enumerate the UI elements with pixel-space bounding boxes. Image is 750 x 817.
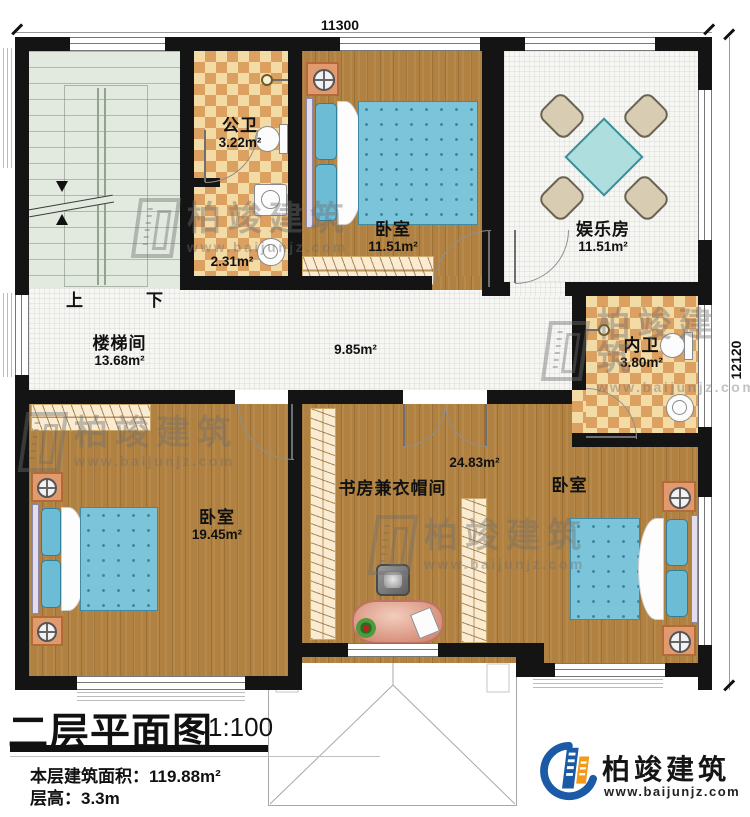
wall	[180, 276, 432, 290]
wall	[302, 390, 403, 404]
room-label-entertainment: 娱乐房 11.51m²	[553, 220, 653, 254]
light-pull-line	[273, 79, 288, 81]
window	[555, 663, 665, 677]
bed-right	[570, 515, 698, 623]
title-underline	[10, 745, 268, 752]
floor-height-label: 层高：	[30, 789, 81, 808]
nightstand	[31, 472, 63, 502]
window	[698, 305, 712, 427]
floor-height-value: 3.3m	[81, 789, 120, 808]
nightstand	[662, 625, 696, 656]
wardrobe	[461, 498, 487, 643]
wall	[15, 375, 29, 690]
brand-logo: 柏竣建筑 www.baijunjz.com	[536, 740, 741, 806]
toilet-tank	[279, 124, 288, 154]
wall	[15, 37, 29, 295]
stair-inner-outline	[64, 85, 148, 287]
eave-lines	[3, 48, 14, 168]
bed-left	[32, 504, 158, 614]
eave-lines	[3, 293, 14, 377]
room-label-bedroom-right: 卧室	[532, 476, 607, 495]
room-label-bath-lobby: 2.31m²	[192, 254, 272, 269]
wall	[180, 37, 194, 290]
wardrobe	[310, 408, 336, 640]
nightstand	[306, 62, 339, 96]
window	[525, 37, 655, 51]
entertainment-threshold	[510, 282, 565, 296]
nightstand	[662, 481, 696, 512]
wall	[487, 390, 572, 404]
wall	[295, 643, 348, 657]
door-leaf	[488, 230, 490, 287]
door-leaf	[291, 404, 293, 459]
wall	[288, 37, 302, 276]
brand-url: www.baijunjz.com	[604, 784, 740, 799]
floor-height-row: 层高：3.3m	[30, 784, 120, 809]
eave-lines	[533, 679, 663, 689]
wall	[572, 296, 586, 390]
window	[340, 37, 480, 51]
brand-name: 柏竣建筑	[602, 748, 730, 788]
dimension-right: 12120	[728, 330, 744, 390]
ceiling-light-icon	[598, 324, 610, 336]
window	[77, 676, 245, 690]
scale-label: 1:100	[208, 712, 273, 743]
bed-top	[306, 98, 478, 228]
floor-area-value: 119.88m²	[149, 767, 221, 786]
washing-machine-drum	[261, 190, 280, 209]
window	[15, 295, 29, 375]
stair-arrow-down-icon	[56, 181, 68, 192]
room-label-public-bath: 公卫 3.22m²	[200, 116, 280, 150]
door-leaf	[514, 230, 516, 283]
nightstand	[31, 616, 63, 646]
basin-inner	[672, 400, 687, 415]
window	[70, 37, 165, 51]
door-leaf	[485, 404, 487, 446]
brand-logo-icon	[536, 740, 598, 802]
stair-rail	[97, 88, 106, 285]
porch-roof-outline	[268, 657, 517, 806]
room-label-study-area: 24.83m²	[437, 455, 512, 470]
light-pull-line	[586, 329, 598, 331]
room-label-hallway: 9.85m²	[318, 342, 393, 357]
stair-label-down: 下	[140, 291, 170, 310]
wall	[530, 663, 555, 677]
window	[348, 643, 438, 657]
room-label-study: 书房兼衣帽间	[310, 479, 475, 498]
wall	[15, 676, 77, 690]
stair-label-up: 上	[60, 291, 90, 310]
inner-bath-threshold	[572, 390, 586, 433]
lamp-icon	[313, 69, 335, 91]
wall	[698, 37, 712, 90]
wall	[665, 663, 712, 677]
dimension-tick	[703, 23, 715, 35]
title-rule	[10, 756, 380, 757]
stair-arrow-up-icon	[56, 214, 68, 225]
room-label-bedroom-top: 卧室 11.51m²	[348, 220, 438, 254]
wall	[15, 390, 235, 404]
wardrobe	[31, 404, 151, 431]
wall	[565, 282, 712, 296]
window	[698, 90, 712, 240]
floor-plan-page: 公卫 3.22m² 2.31m² 卧室 11.51m² 娱乐房 11.51m² …	[0, 0, 750, 817]
door-leaf	[403, 404, 405, 446]
dimension-tick	[11, 23, 23, 35]
window	[698, 497, 712, 645]
room-label-stairwell: 楼梯间 13.68m²	[72, 334, 167, 368]
desk-plant-icon	[356, 618, 376, 638]
room-label-bedroom-left: 卧室 19.45m²	[172, 508, 262, 542]
door-leaf	[586, 436, 636, 438]
dimension-top: 11300	[295, 17, 385, 33]
roof-ridge-lines	[269, 658, 516, 805]
wall	[438, 643, 544, 657]
ceiling-light-icon	[261, 74, 273, 86]
room-label-inner-bath: 内卫 3.80m²	[604, 336, 679, 370]
desk-chair	[376, 564, 410, 596]
toilet-tank	[684, 332, 693, 360]
